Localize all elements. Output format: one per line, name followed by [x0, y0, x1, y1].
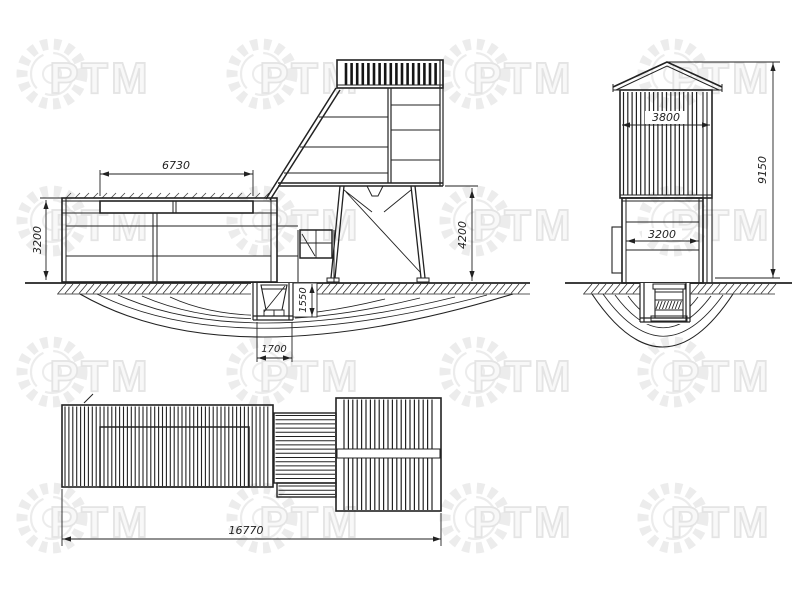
watermark-tile: РТМ [643, 342, 772, 402]
watermark-tile: РТМ [22, 342, 151, 402]
watermark-text: РТМ [670, 498, 771, 547]
watermark-text: РТМ [49, 352, 150, 401]
watermark-tile: РТМ [445, 44, 574, 104]
arrowhead-icon [43, 271, 48, 279]
arrowhead-icon [469, 271, 474, 279]
watermark-text: РТМ [670, 201, 771, 250]
watermark-text: РТМ [472, 352, 573, 401]
dim-label: 1550 [298, 287, 309, 312]
dim-label: 9150 [756, 156, 769, 184]
plan-middle-hatch [276, 416, 336, 479]
dim-label: 1700 [261, 344, 286, 355]
corrugated-siding [624, 92, 697, 195]
watermark-text: РТМ [670, 352, 771, 401]
watermark-text: РТМ [670, 54, 771, 103]
dim-label: 4200 [456, 221, 469, 249]
dim-label: 3800 [652, 111, 680, 124]
arrowhead-icon [244, 171, 252, 176]
dim-6730: 6730 [100, 159, 253, 196]
dim-label: 3200 [31, 226, 44, 254]
dim-label: 16770 [229, 524, 264, 537]
arrowhead-icon [702, 122, 710, 127]
watermark-tile: РТМ [22, 44, 151, 104]
drawing-canvas: РТМРТМРТМРТМРТМРТМРТМРТМРТМРТМРТМРТМРТМР… [0, 0, 800, 600]
watermark-text: РТМ [472, 201, 573, 250]
plan-left-roof-hatch [65, 407, 268, 487]
watermark-tile: РТМ [445, 342, 574, 402]
arrowhead-icon [101, 171, 109, 176]
dim-label: 3200 [648, 228, 676, 241]
technical-drawing: РТМРТМРТМРТМРТМРТМРТМРТМРТМРТМРТМРТМРТМР… [0, 0, 800, 600]
plan-middle-lower-hatch [279, 486, 336, 494]
arrowhead-icon [433, 536, 441, 541]
watermark-tile: РТМ [445, 488, 574, 548]
watermark-tile: РТМ [232, 342, 361, 402]
plan-right-band [337, 449, 440, 458]
watermark-text: РТМ [472, 54, 573, 103]
discharge-funnel [367, 186, 383, 196]
arrowhead-icon [770, 269, 775, 277]
watermark-text: РТМ [472, 498, 573, 547]
arrowhead-icon [627, 238, 635, 243]
arrowhead-icon [43, 201, 48, 209]
watermark-text: РТМ [259, 352, 360, 401]
dim-label: 6730 [162, 159, 190, 172]
plan-left-section [62, 405, 273, 487]
watermark-tile: РТМ [232, 191, 361, 251]
front-view: 6730 3200 4200 1550 1700 [25, 60, 530, 362]
watermark-tile: РТМ [643, 488, 772, 548]
pit [640, 283, 690, 324]
watermark-text: РТМ [49, 54, 150, 103]
watermark-text: РТМ [49, 498, 150, 547]
watermark-text: РТМ [259, 498, 360, 547]
side-attachment [612, 227, 622, 273]
